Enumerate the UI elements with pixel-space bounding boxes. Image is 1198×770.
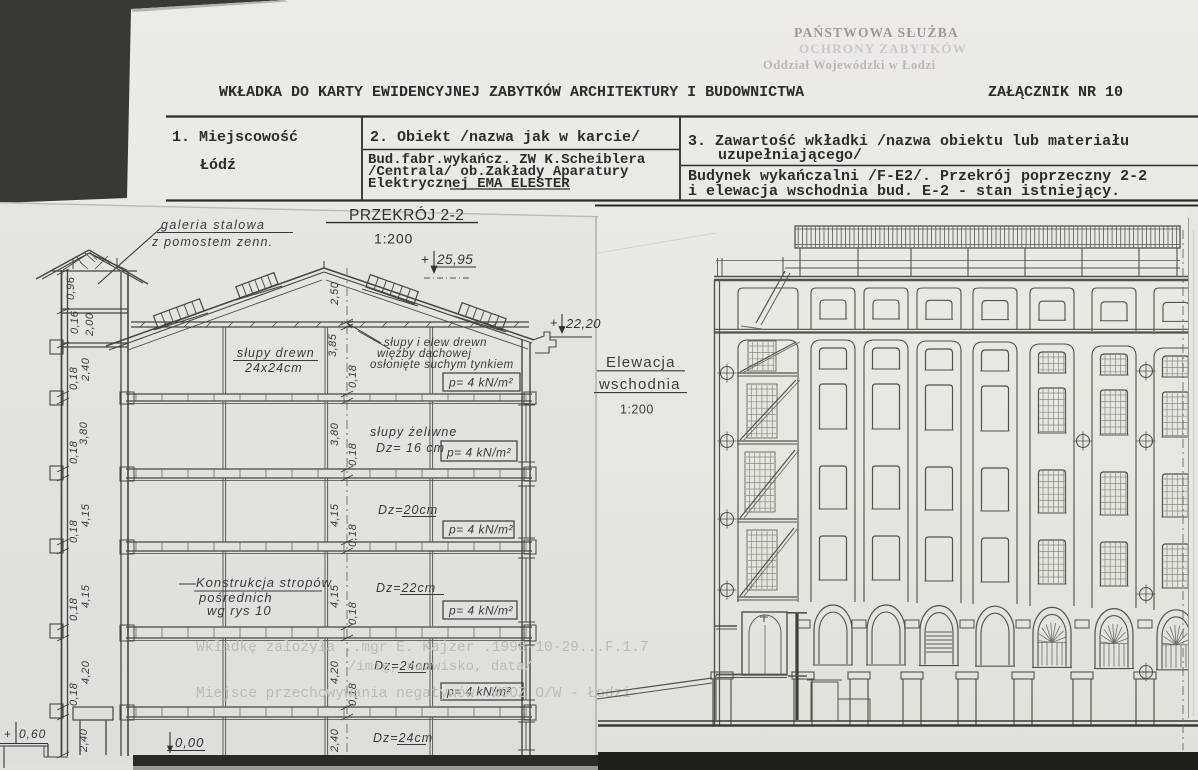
svg-text:WKŁADKA DO KARTY EWIDENCYJNEJ: WKŁADKA DO KARTY EWIDENCYJNEJ ZABYTKÓW A… (219, 83, 804, 101)
svg-text:wg rys 10: wg rys 10 (207, 603, 272, 618)
svg-text:24x24cm: 24x24cm (244, 361, 303, 375)
svg-text:4,15: 4,15 (329, 584, 341, 608)
svg-text:słupy żeliwne: słupy żeliwne (370, 425, 457, 439)
svg-text:3,80: 3,80 (329, 422, 341, 446)
svg-text:0,96: 0,96 (65, 276, 77, 300)
svg-text:0,60: 0,60 (19, 727, 46, 741)
svg-text:Konstrukcja stropów: Konstrukcja stropów (196, 575, 333, 590)
svg-text:4,15: 4,15 (80, 584, 92, 608)
svg-text:0,00: 0,00 (175, 735, 204, 750)
svg-text:p= 4 kN/m²: p= 4 kN/m² (448, 604, 514, 618)
svg-text:p= 4 kN/m²: p= 4 kN/m² (446, 446, 512, 460)
svg-text:Dz=20cm: Dz=20cm (378, 503, 438, 517)
svg-text:0,18: 0,18 (347, 442, 359, 466)
svg-text:uzupełniającego/: uzupełniającego/ (718, 147, 862, 164)
svg-text:2,00: 2,00 (84, 312, 96, 337)
svg-text:osłonięte suchym tynkiem: osłonięte suchym tynkiem (370, 359, 514, 371)
svg-text:0,18: 0,18 (68, 366, 80, 390)
svg-text:Elektrycznej EMA ELESTER: Elektrycznej EMA ELESTER (368, 176, 570, 192)
svg-text:4,20: 4,20 (80, 660, 92, 684)
svg-text:0,18: 0,18 (68, 597, 80, 621)
svg-text:Dz=24cm: Dz=24cm (373, 731, 433, 745)
svg-text:OCHRONY ZABYTKÓW: OCHRONY ZABYTKÓW (799, 41, 967, 56)
svg-text:p= 4 kN/m²: p= 4 kN/m² (448, 523, 514, 537)
svg-text:wschodnia: wschodnia (598, 376, 681, 393)
svg-text:Dz= 16 cm: Dz= 16 cm (376, 441, 445, 455)
svg-text:2. Obiekt /nazwa jak w karcie/: 2. Obiekt /nazwa jak w karcie/ (370, 129, 640, 146)
svg-text:/imię, nazwisko, data/: /imię, nazwisko, data/ (348, 659, 533, 675)
svg-text:z pomostem zenn.: z pomostem zenn. (151, 235, 273, 249)
svg-text:4,20: 4,20 (329, 660, 341, 684)
svg-text:PAŃSTWOWA SŁUŻBA: PAŃSTWOWA SŁUŻBA (794, 25, 959, 40)
svg-text:Elewacja: Elewacja (606, 354, 676, 371)
svg-text:PRZEKRÓJ 2-2: PRZEKRÓJ 2-2 (349, 207, 464, 224)
svg-text:1:200: 1:200 (374, 231, 413, 247)
svg-text:0,18: 0,18 (347, 364, 359, 388)
svg-text:2,40: 2,40 (329, 728, 341, 753)
svg-text:ZAŁĄCZNIK NR 10: ZAŁĄCZNIK NR 10 (988, 84, 1123, 101)
svg-text:2,50: 2,50 (329, 281, 341, 306)
svg-text:0,18: 0,18 (68, 519, 80, 543)
svg-text:Łódź: Łódź (200, 157, 236, 174)
svg-text:4,15: 4,15 (80, 503, 92, 527)
svg-text:0,18: 0,18 (68, 682, 80, 706)
svg-text:Miejsce przechowywania negatyw: Miejsce przechowywania negatywów .WSOZ O… (196, 686, 631, 702)
svg-text:Oddział Wojewódzki w Łodzi: Oddział Wojewódzki w Łodzi (763, 58, 936, 72)
svg-text:+: + (550, 315, 558, 330)
svg-text:0,18: 0,18 (347, 523, 359, 547)
svg-text:0,18: 0,18 (347, 601, 359, 625)
svg-text:słupy drewn: słupy drewn (237, 346, 315, 360)
svg-text:+: + (4, 727, 11, 741)
svg-text:0,18: 0,18 (68, 440, 80, 464)
svg-text:2,40: 2,40 (80, 357, 92, 382)
svg-text:Wkładkę założyła ..mgr E. Kajz: Wkładkę założyła ..mgr E. Kajzer .1998-1… (196, 640, 648, 656)
svg-text:25,95: 25,95 (436, 252, 473, 267)
svg-text:i elewacja wschodnia bud. E-2: i elewacja wschodnia bud. E-2 - stan ist… (688, 183, 1120, 200)
svg-text:0,16: 0,16 (69, 310, 81, 334)
svg-text:3,85: 3,85 (327, 333, 339, 357)
svg-text:galeria stalowa: galeria stalowa (161, 218, 265, 232)
svg-text:4,15: 4,15 (329, 503, 341, 527)
svg-text:p= 4 kN/m²: p= 4 kN/m² (448, 376, 514, 390)
svg-text:Dz=22cm: Dz=22cm (376, 581, 436, 595)
svg-text:1:200: 1:200 (620, 403, 654, 417)
svg-text:22,20: 22,20 (565, 316, 601, 331)
svg-text:1. Miejscowość: 1. Miejscowość (172, 129, 298, 146)
svg-text:+: + (421, 252, 429, 267)
